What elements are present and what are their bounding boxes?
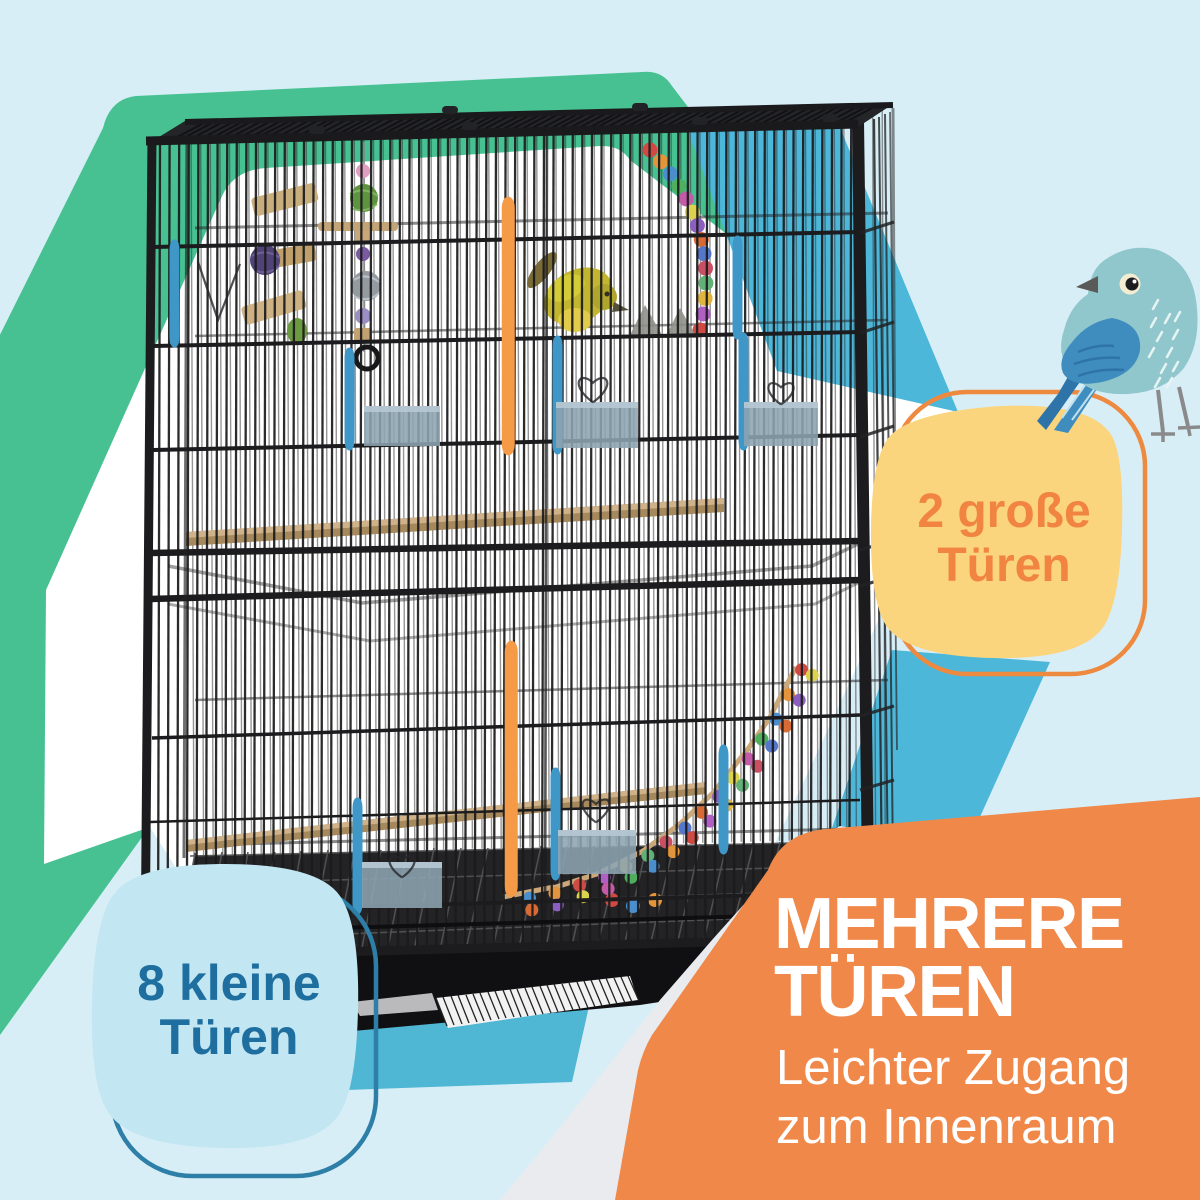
svg-text:Leichter Zugang: Leichter Zugang xyxy=(776,1041,1130,1095)
svg-text:2 große: 2 große xyxy=(917,485,1090,538)
svg-text:zum Innenraum: zum Innenraum xyxy=(776,1100,1116,1154)
svg-text:TÜREN: TÜREN xyxy=(774,952,1015,1032)
svg-text:8 kleine: 8 kleine xyxy=(137,955,320,1011)
svg-text:Türen: Türen xyxy=(160,1009,299,1065)
svg-text:Türen: Türen xyxy=(937,539,1070,592)
